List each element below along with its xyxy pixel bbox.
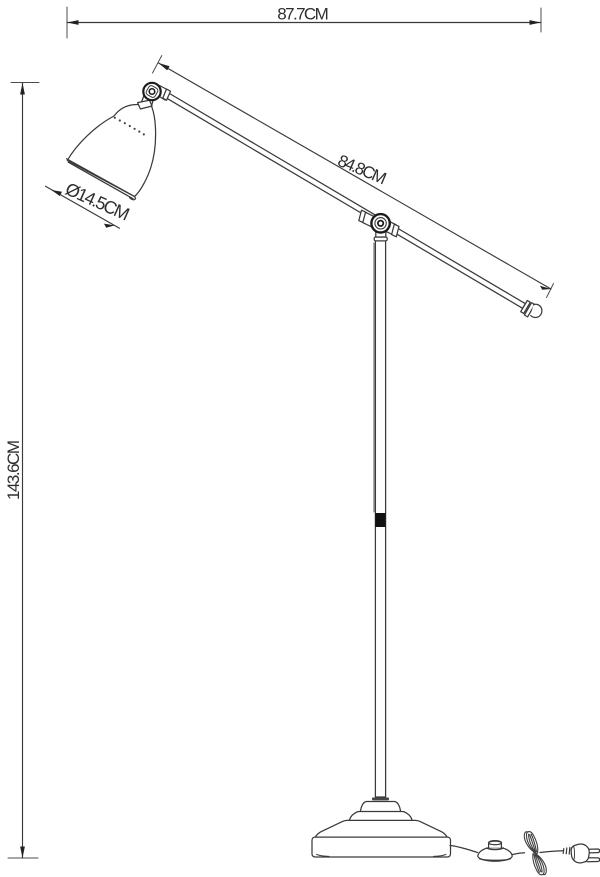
svg-text:87.7CM: 87.7CM bbox=[277, 4, 329, 23]
svg-text:143.6CM: 143.6CM bbox=[4, 440, 23, 500]
